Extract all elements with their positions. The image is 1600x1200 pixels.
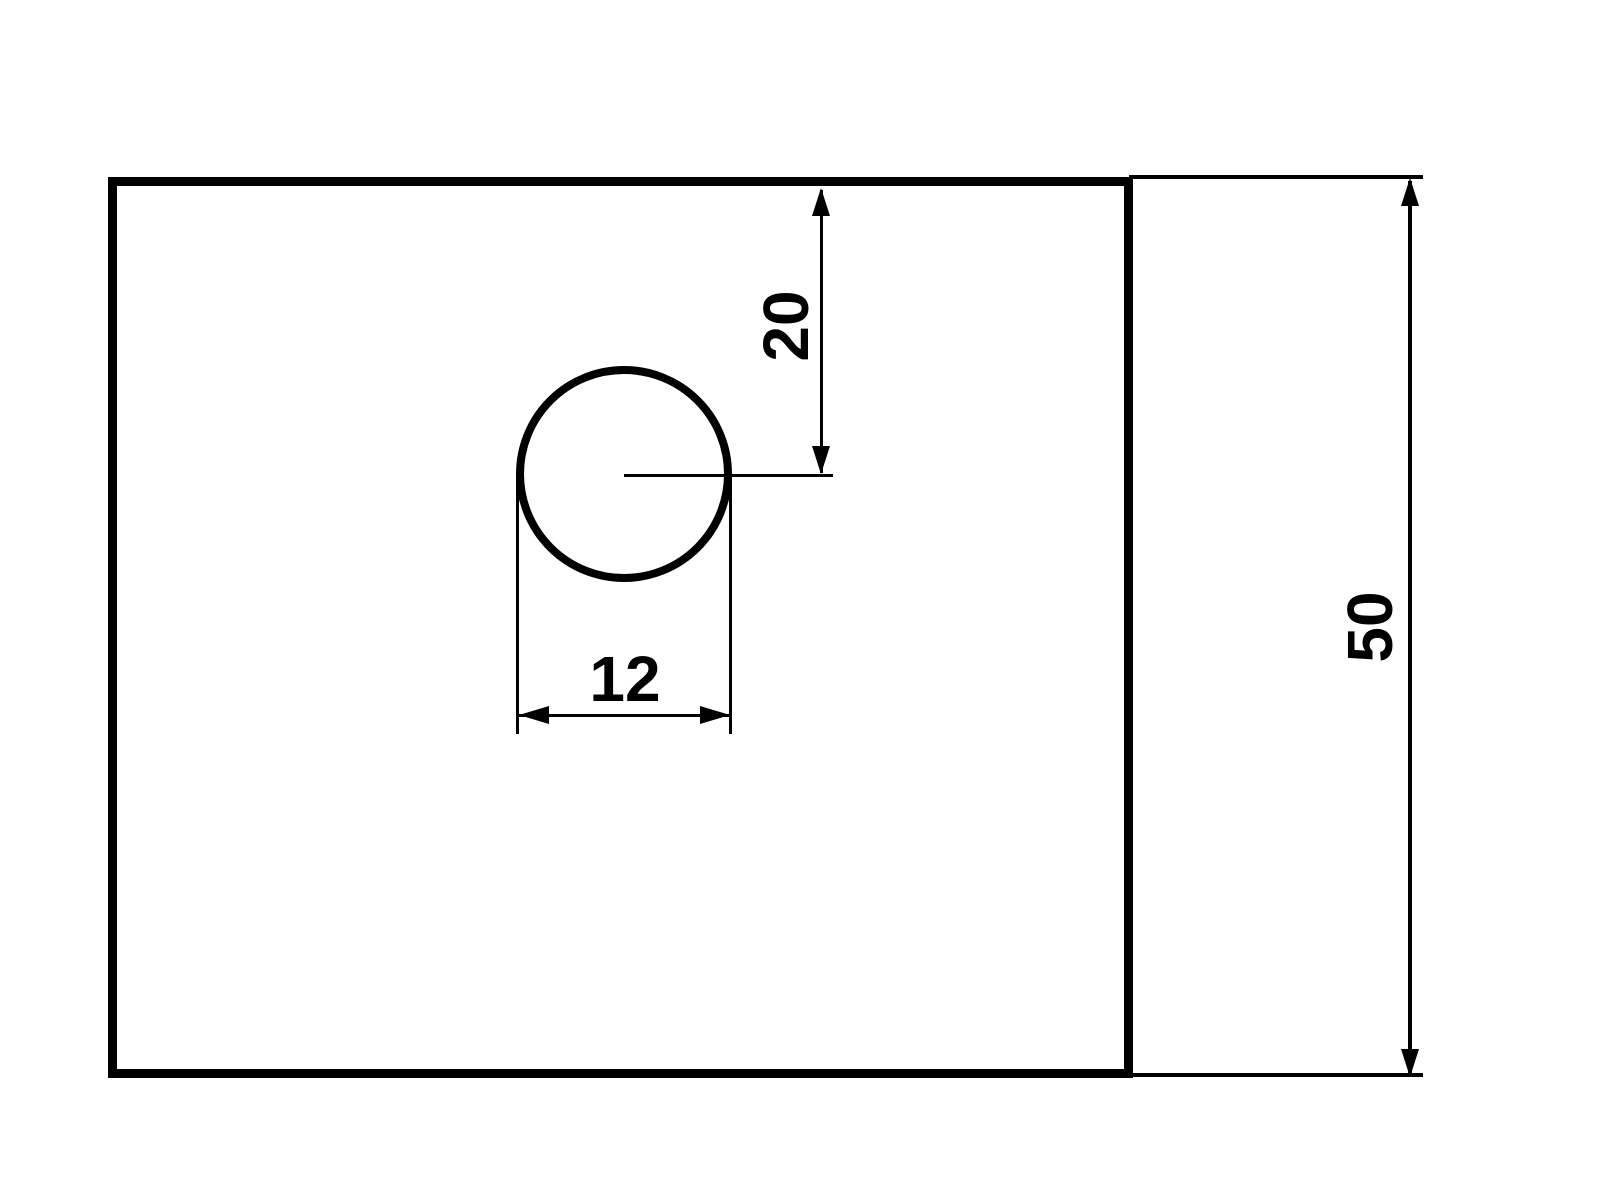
dim-50-extension-top	[1129, 175, 1423, 179]
technical-drawing-canvas: 20 12 50	[0, 0, 1600, 1200]
dim-50-line	[1408, 181, 1412, 1076]
dim-50-arrow-up-icon	[1401, 178, 1419, 206]
dim-12-extension-left	[516, 476, 519, 734]
dim-20-arrow-up-icon	[812, 188, 830, 216]
dim-50-label: 50	[1338, 591, 1402, 662]
dim-12-arrow-right-icon	[700, 706, 730, 724]
dim-12-arrow-left-icon	[519, 706, 549, 724]
plate-outline	[108, 177, 1133, 1078]
dim-50-extension-bottom	[1129, 1073, 1423, 1077]
dim-12-extension-right	[729, 477, 732, 734]
dim-20-label: 20	[754, 290, 818, 361]
dim-12-label: 12	[589, 647, 660, 711]
dim-20-arrow-down-icon	[812, 446, 830, 474]
dim-50-arrow-down-icon	[1401, 1049, 1419, 1077]
